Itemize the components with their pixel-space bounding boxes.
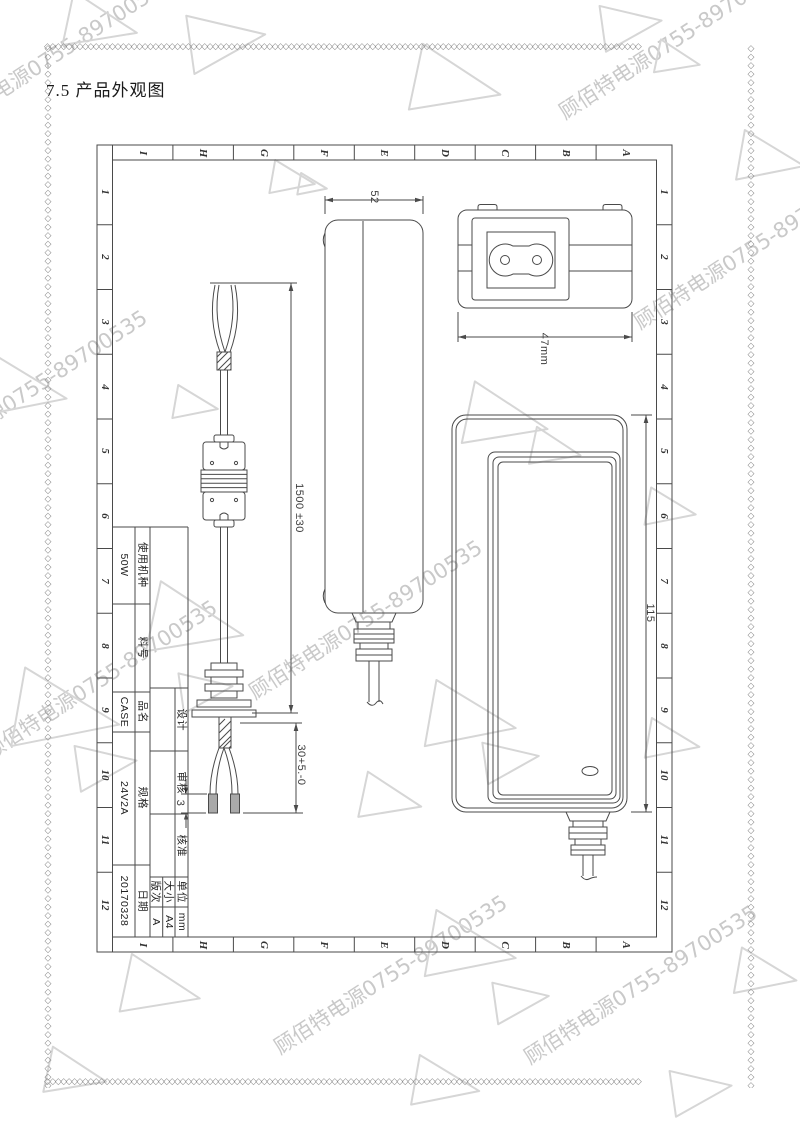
dim-tip-strip: 3 [174,800,186,807]
tb-unit-label: 单位 [174,881,189,904]
tb-design-label: 设计 [174,708,189,731]
tb-model-label: 使用机种 [135,542,150,588]
drawing-frame [97,145,672,952]
side-view [323,220,423,705]
dim-inlet-width: 47mm [538,333,550,366]
tb-rev-value: A [150,918,162,926]
dim-cable-length: 1500 ±30 [293,483,305,533]
document-page: 顾佰特电源0755-89700535顾佰特电源0755-89700535顾佰特电… [0,0,800,1132]
tb-name-label: 品名 [135,701,150,724]
cable-assembly [192,283,256,813]
tb-spec-value: 24V2A [118,781,130,815]
tb-size-value: A4 [163,915,175,929]
dim-side-width: 52 [368,190,380,203]
tb-unit-value: mm [176,913,188,932]
tb-partno-label: 料号 [135,637,150,660]
dimension-lines [181,196,652,828]
front-view [452,415,627,880]
dim-front-height: 115 [644,603,656,622]
tb-name-value: CASE [118,697,130,728]
inlet-view [458,205,632,309]
tb-approve-label: 核准 [174,834,189,857]
dim-output-strip: 30+5.-0 [295,744,307,785]
dimension-arrows [184,198,648,820]
tb-spec-label: 规格 [135,787,150,810]
tb-model-value: 50W [118,553,130,576]
tb-date-value: 20170328 [118,876,130,927]
tb-review-label: 审核 [174,771,189,794]
